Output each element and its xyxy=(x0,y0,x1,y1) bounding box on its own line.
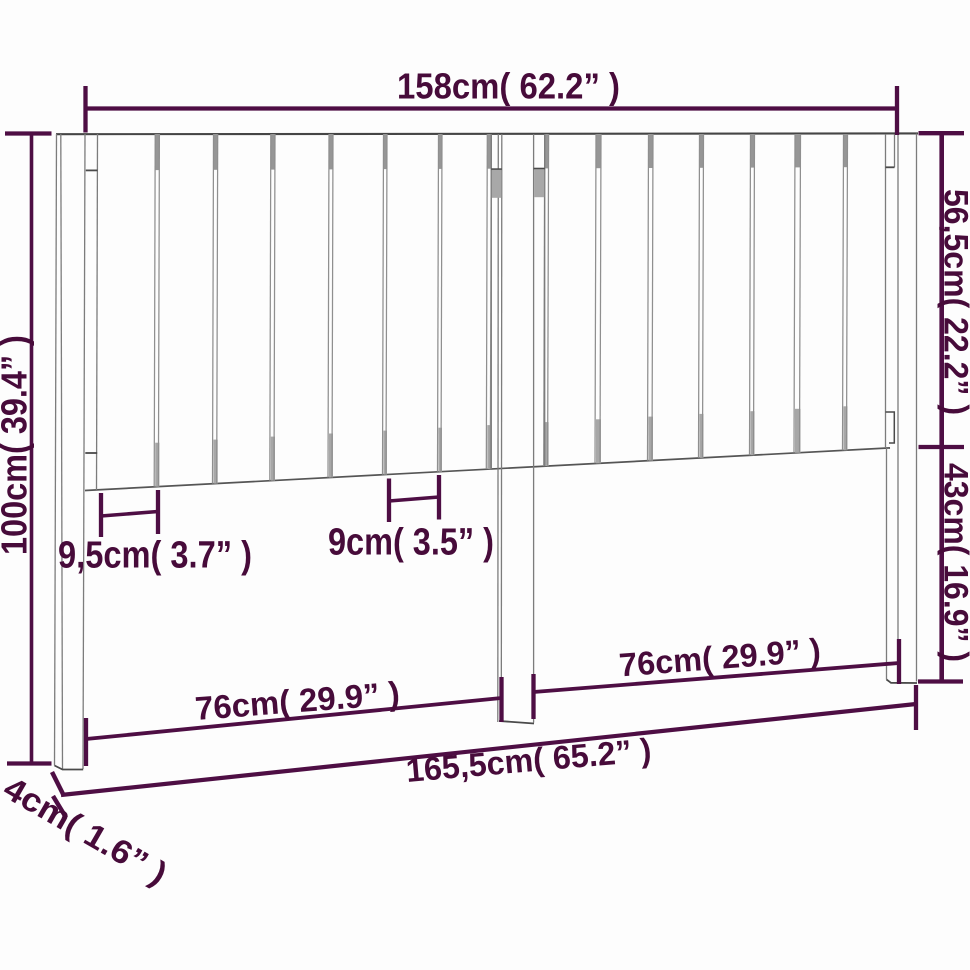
svg-text:9cm( 3.5” ): 9cm( 3.5” ) xyxy=(328,522,494,564)
svg-text:43cm( 16.9” ): 43cm( 16.9” ) xyxy=(937,463,970,662)
svg-text:158cm( 62.2” ): 158cm( 62.2” ) xyxy=(397,66,620,107)
svg-text:9,5cm( 3.7” ): 9,5cm( 3.7” ) xyxy=(58,535,252,577)
svg-text:56,5cm( 22.2” ): 56,5cm( 22.2” ) xyxy=(937,189,970,415)
svg-text:100cm( 39.4” ): 100cm( 39.4” ) xyxy=(0,335,35,555)
